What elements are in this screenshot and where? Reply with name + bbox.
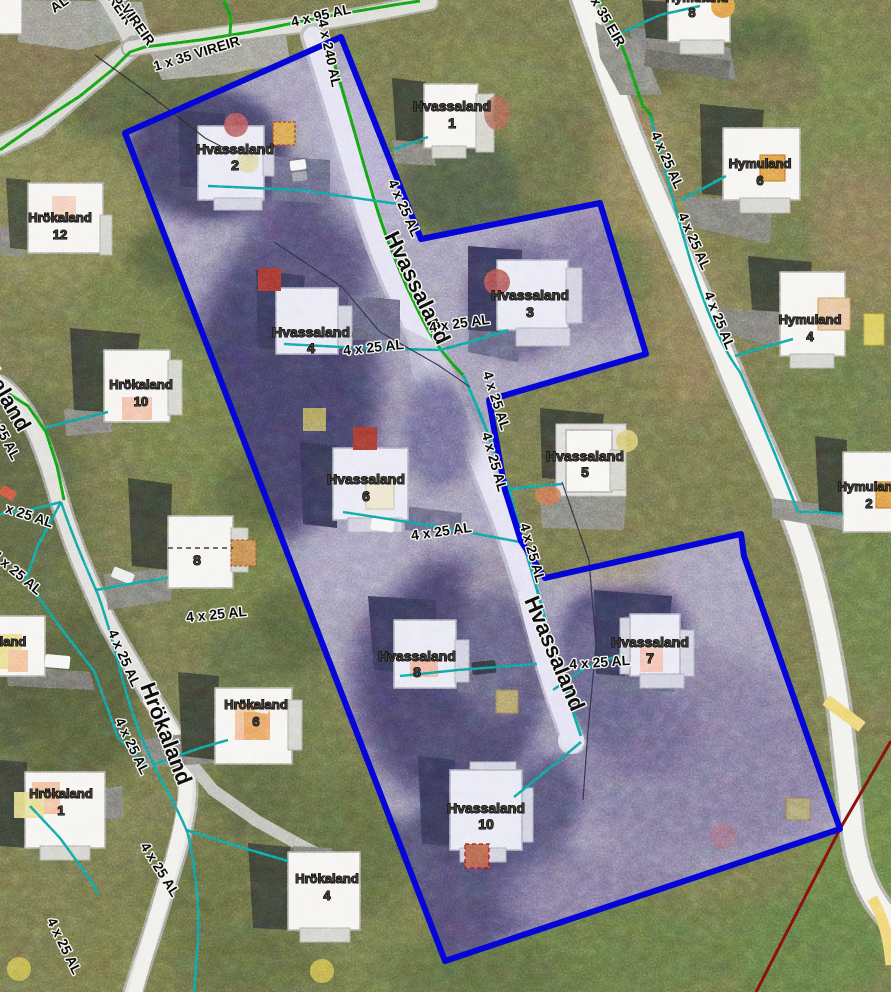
svg-text:Hvassaland: Hvassaland <box>413 98 491 114</box>
svg-text:4: 4 <box>323 888 331 903</box>
svg-text:Hymuland: Hymuland <box>729 156 792 171</box>
svg-text:8: 8 <box>413 664 421 680</box>
svg-text:10: 10 <box>134 394 148 409</box>
svg-text:land: land <box>0 634 26 649</box>
svg-text:4: 4 <box>307 340 315 356</box>
svg-text:Hvassaland: Hvassaland <box>327 471 405 487</box>
svg-text:12: 12 <box>53 227 67 242</box>
svg-text:6: 6 <box>756 173 763 188</box>
svg-text:Hymuland: Hymuland <box>666 0 729 5</box>
svg-text:1: 1 <box>57 803 64 818</box>
svg-text:Hrökaland: Hrökaland <box>109 377 173 392</box>
svg-text:2: 2 <box>231 157 239 173</box>
svg-text:Hrökaland: Hrökaland <box>295 871 359 886</box>
svg-text:10: 10 <box>478 816 494 832</box>
svg-text:Hvassaland: Hvassaland <box>447 800 525 816</box>
svg-text:2: 2 <box>865 496 872 511</box>
svg-text:Hvassaland: Hvassaland <box>611 634 689 650</box>
svg-text:1: 1 <box>448 115 456 131</box>
svg-text:6: 6 <box>252 714 259 729</box>
svg-text:3: 3 <box>526 304 534 320</box>
svg-text:Hvassaland: Hvassaland <box>546 448 624 464</box>
svg-text:4: 4 <box>806 329 814 344</box>
svg-text:8: 8 <box>193 552 201 568</box>
svg-text:Hymuland: Hymuland <box>838 479 891 494</box>
svg-text:7: 7 <box>646 650 654 666</box>
svg-text:Hvassaland: Hvassaland <box>378 648 456 664</box>
svg-text:Hrökaland: Hrökaland <box>224 697 288 712</box>
svg-text:Hrökaland: Hrökaland <box>29 786 93 801</box>
svg-text:8: 8 <box>688 5 695 20</box>
svg-text:Hvassaland: Hvassaland <box>491 287 569 303</box>
svg-text:5: 5 <box>581 464 589 480</box>
svg-text:Hvassaland: Hvassaland <box>272 324 350 340</box>
svg-text:6: 6 <box>362 488 370 504</box>
svg-text:Hrökaland: Hrökaland <box>28 210 92 225</box>
svg-text:Hymuland: Hymuland <box>779 312 842 327</box>
svg-text:Hvassaland: Hvassaland <box>196 141 274 157</box>
